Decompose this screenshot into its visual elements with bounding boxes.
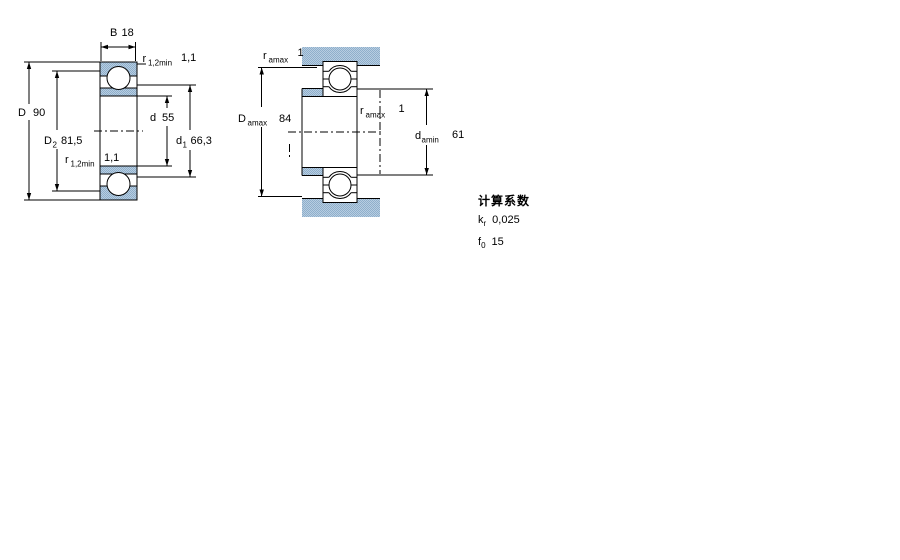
label-D2-sub: 2 (53, 141, 58, 150)
label-D2-value: 81,5 (61, 135, 82, 147)
arrowhead (425, 168, 429, 175)
label-D-value: 90 (33, 107, 45, 119)
factor-kr-value: 0,025 (492, 214, 520, 226)
right-figure-mounting-section: r amax 1 D amax 84 r amax 1 d amin 61 (238, 47, 464, 217)
label-ramax-top-sub: amax (269, 56, 289, 65)
arrowhead (260, 68, 264, 75)
label-d1: d (176, 135, 182, 147)
factor-f0-value: 15 (492, 236, 504, 248)
ball-bottom (107, 173, 130, 196)
factor-f0-subscript: 0 (481, 241, 485, 250)
ball-bottom (329, 174, 351, 196)
calculation-factors-title: 计算系数 (478, 192, 530, 209)
label-r-top: r (143, 53, 147, 65)
calculation-factors-block: 计算系数 kr0,025 f015 (478, 192, 530, 253)
label-r-top-sub: 1,2min (148, 59, 172, 68)
label-damin-sub: amin (422, 136, 439, 145)
arrowhead (55, 71, 59, 78)
label-d-value: 55 (162, 112, 174, 124)
dimension-B (101, 42, 136, 61)
arrowhead (165, 96, 169, 103)
label-r-bottom: r (65, 154, 69, 166)
label-ramax-mid-value: 1 (399, 103, 405, 115)
factor-kr-row: kr0,025 (478, 213, 530, 231)
label-D2: D (44, 135, 52, 147)
arrowhead (188, 85, 192, 92)
arrowhead (129, 45, 136, 49)
arrowhead (260, 190, 264, 197)
ball-top (329, 68, 351, 90)
label-r-bottom-value: 1,1 (104, 152, 119, 164)
label-r-bottom-sub: 1,2min (71, 160, 95, 169)
ball-top (107, 67, 130, 90)
dimension-D (24, 62, 100, 200)
dimension-D2 (52, 71, 100, 191)
label-d1-sub: 1 (183, 141, 188, 150)
label-Damax: D (238, 113, 246, 125)
arrowhead (165, 159, 169, 166)
label-D: D (18, 107, 26, 119)
arrowhead (27, 62, 31, 69)
label-ramax-top-value: 1 (298, 47, 304, 59)
arrowhead (55, 184, 59, 191)
label-damin: d (415, 130, 421, 142)
arrowhead (101, 45, 108, 49)
arrowhead (425, 89, 429, 96)
label-ramax-mid: r (360, 105, 364, 117)
label-Damax-value: 84 (279, 113, 291, 125)
factor-f0-row: f015 (478, 235, 530, 253)
label-damin-value: 61 (452, 129, 464, 141)
left-figure-bearing-section: B 18 r 1,2min 1,1 D 90 D 2 81,5 d 55 d 1… (18, 27, 212, 200)
factor-kr-subscript: r (484, 219, 487, 228)
arrowhead (27, 193, 31, 200)
label-ramax-top: r (263, 50, 267, 62)
label-d: d (150, 112, 156, 124)
bearing-drawing-page: B 18 r 1,2min 1,1 D 90 D 2 81,5 d 55 d 1… (0, 0, 900, 560)
label-B-value: 18 (122, 27, 134, 39)
label-Damax-sub: amax (248, 119, 268, 128)
label-ramax-mid-sub: amax (366, 111, 386, 120)
label-B: B (110, 27, 117, 39)
label-d1-value: 66,3 (191, 135, 212, 147)
bearing-technical-drawing: B 18 r 1,2min 1,1 D 90 D 2 81,5 d 55 d 1… (0, 0, 900, 560)
label-r-top-value: 1,1 (181, 52, 196, 64)
arrowhead (188, 170, 192, 177)
